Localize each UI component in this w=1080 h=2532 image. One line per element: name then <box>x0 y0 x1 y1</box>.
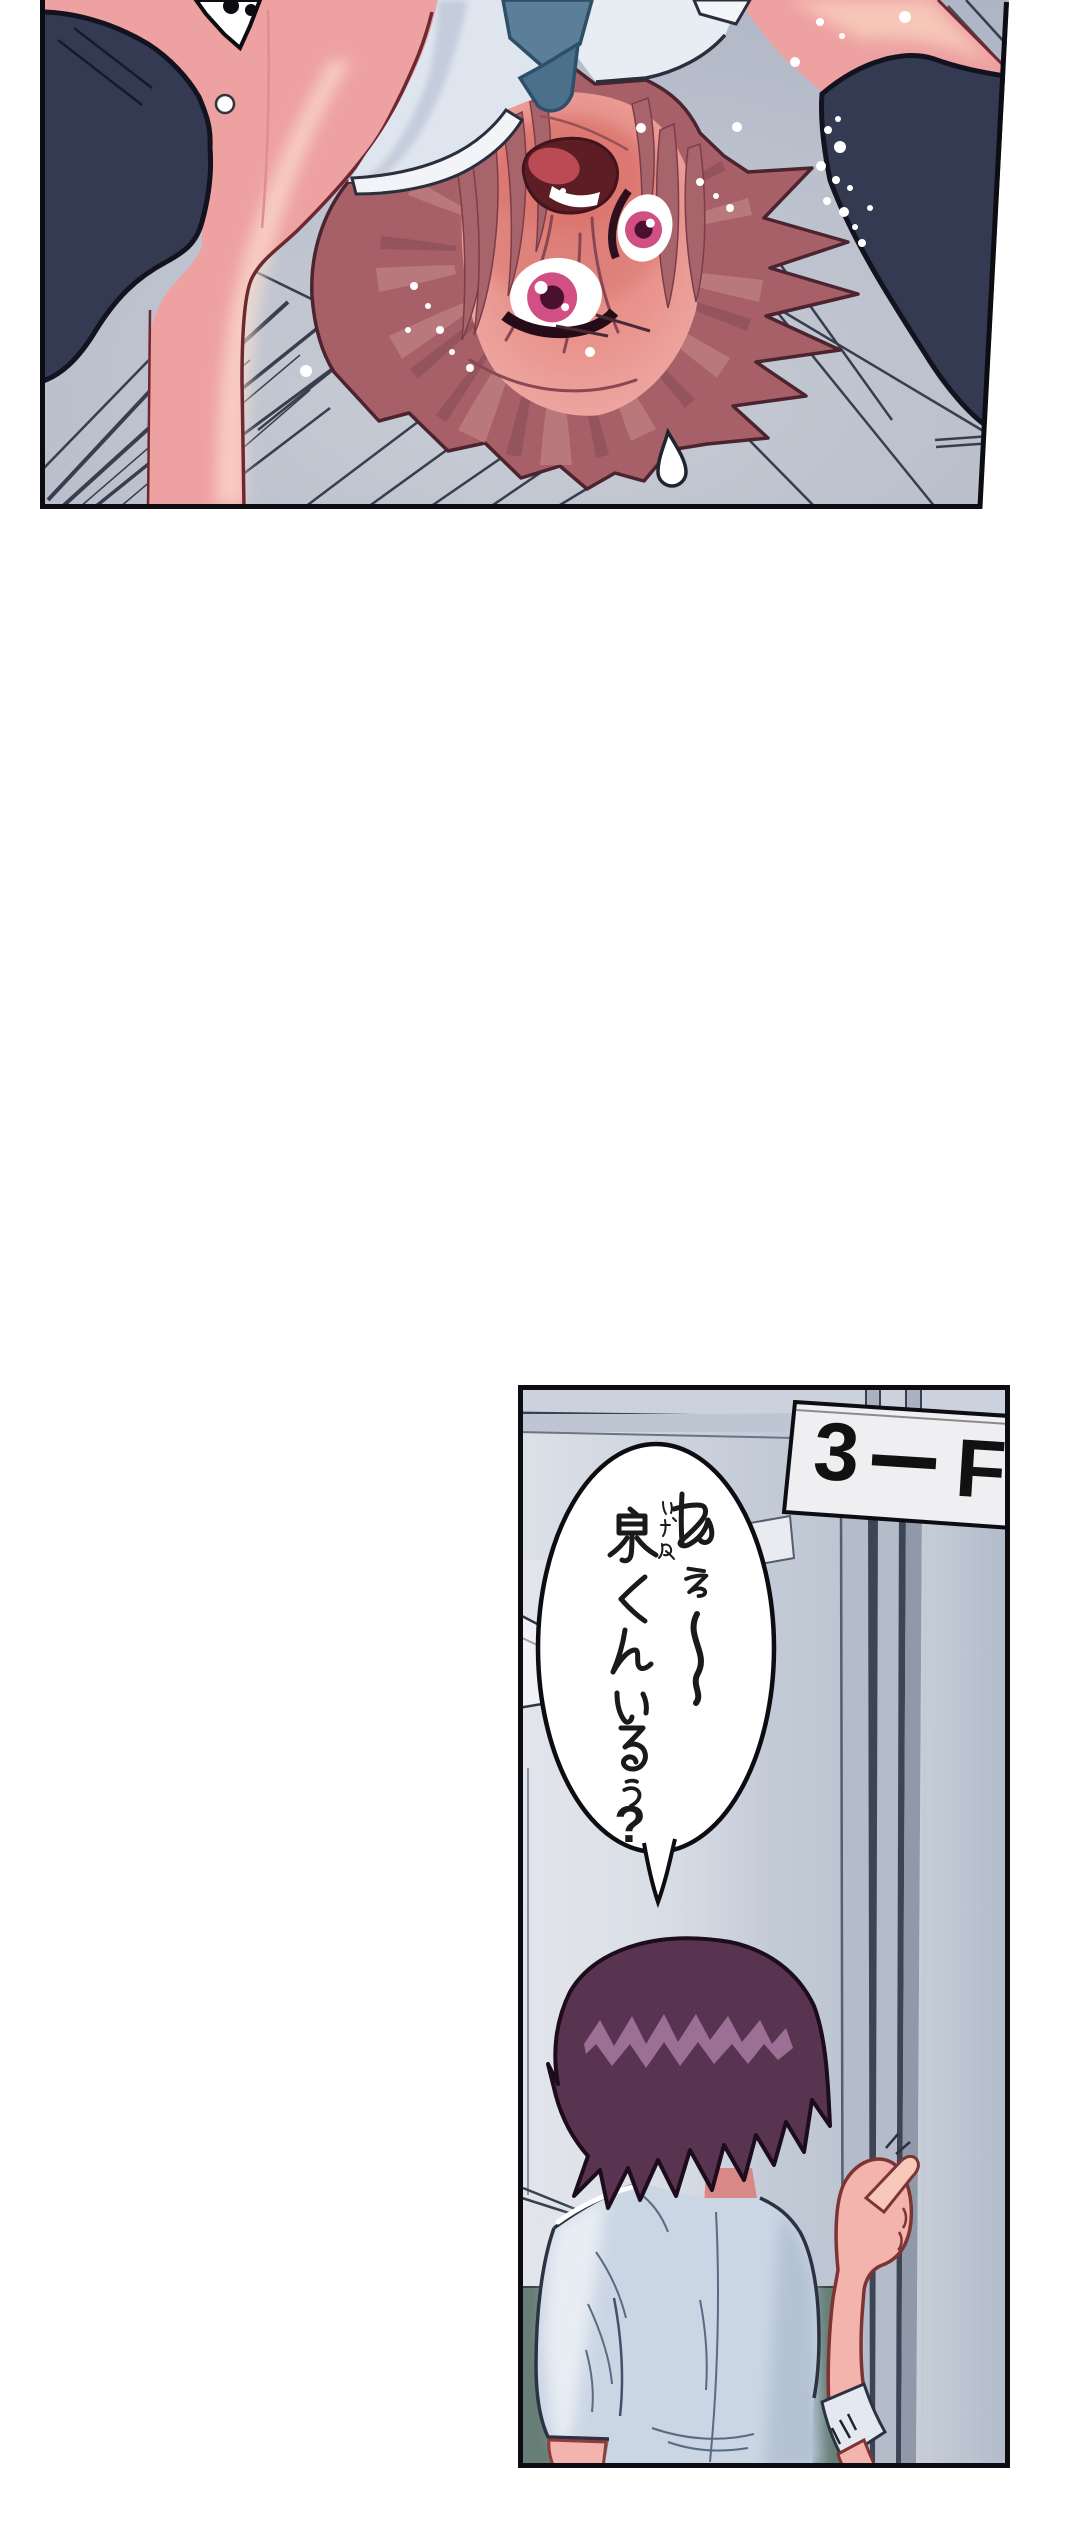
svg-text:3: 3 <box>811 1406 862 1500</box>
svg-text:?: ? <box>614 1796 646 1854</box>
svg-text:F: F <box>953 1423 1009 1517</box>
